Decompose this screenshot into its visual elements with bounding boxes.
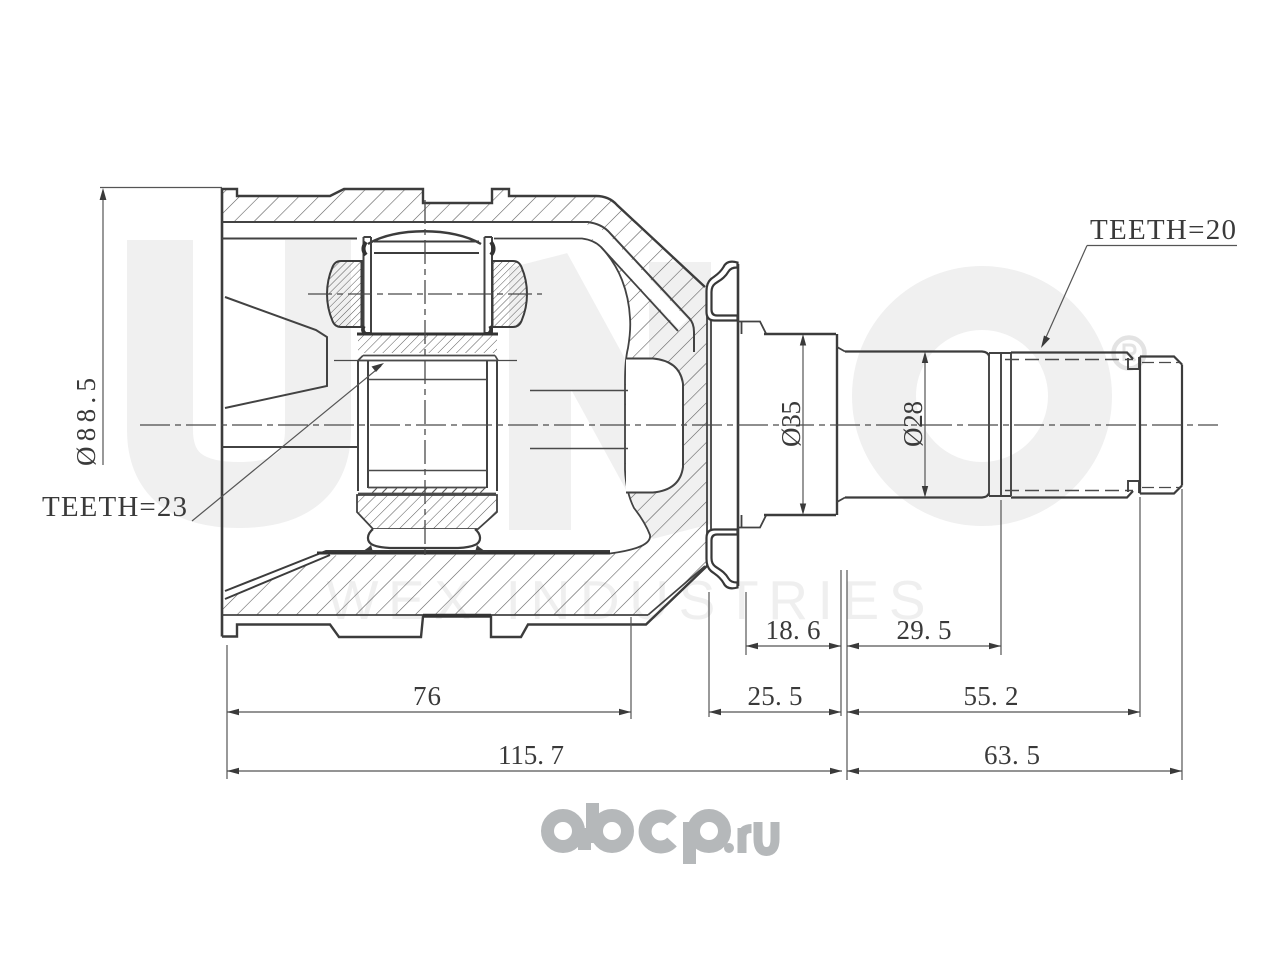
svg-text:63. 5: 63. 5 — [984, 740, 1040, 770]
svg-text:Ø88.5: Ø88.5 — [71, 378, 101, 466]
svg-text:25. 5: 25. 5 — [748, 681, 803, 711]
svg-text:Ø35: Ø35 — [776, 401, 806, 447]
svg-text:TEETH=23: TEETH=23 — [42, 491, 187, 523]
svg-text:18. 6: 18. 6 — [766, 615, 821, 645]
svg-text:TEETH=20: TEETH=20 — [1090, 214, 1236, 246]
svg-text:55. 2: 55. 2 — [964, 681, 1019, 711]
svg-text:Ø28: Ø28 — [898, 401, 928, 447]
svg-text:76: 76 — [413, 681, 441, 711]
svg-text:29. 5: 29. 5 — [897, 615, 952, 645]
svg-text:115. 7: 115. 7 — [498, 740, 564, 770]
